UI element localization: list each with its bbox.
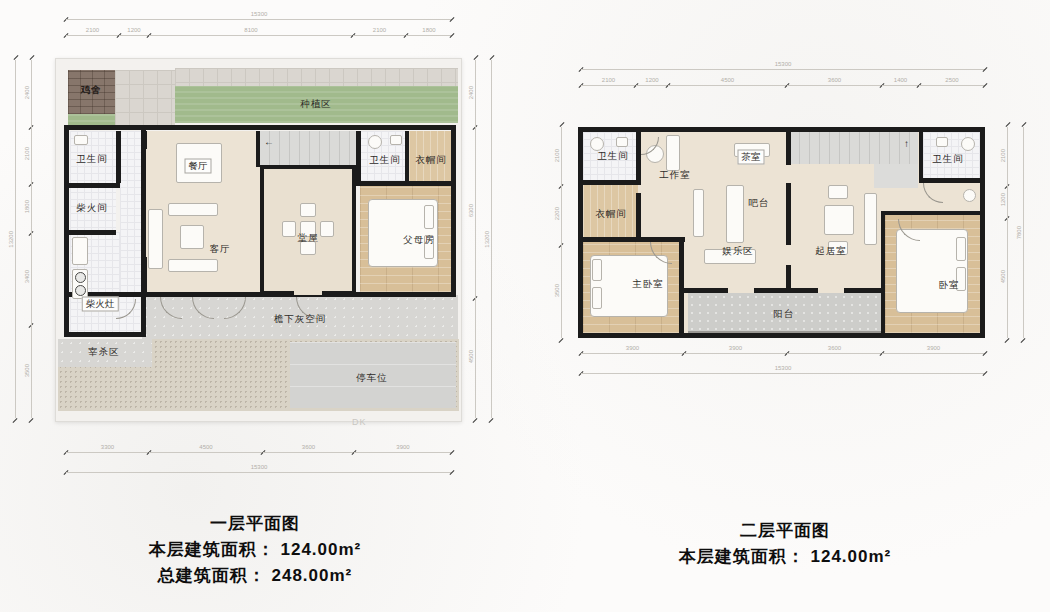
dim-value: 4500 xyxy=(721,77,734,83)
dim-value: 3600 xyxy=(828,345,841,351)
dim-value: 2100 xyxy=(1000,149,1006,162)
floor1-title: 一层平面图 xyxy=(95,511,415,537)
wall xyxy=(356,181,456,186)
wall xyxy=(786,127,791,165)
floor1-dim-top-segments: 2100 1200 8100 2100 1800 xyxy=(66,26,452,36)
floor1-site-sheet: ← 鸡舍 种植区 卫生间 餐厅 柴火间 客厅 堂屋 卫生间 衣帽间 父母房 柴火… xyxy=(55,58,462,422)
room-label-dining: 餐厅 xyxy=(185,159,212,174)
sofa-furniture xyxy=(148,209,163,269)
room-label-slaughter-area: 宰杀区 xyxy=(88,346,120,359)
burner-icon xyxy=(75,272,86,283)
wall xyxy=(636,193,641,237)
dim-value: 3900 xyxy=(729,345,742,351)
floor1-title-block: 一层平面图 本层建筑面积： 124.00m² 总建筑面积： 248.00m² xyxy=(95,511,415,589)
pillow-furniture xyxy=(424,205,434,229)
dim-value: 2100 xyxy=(602,77,615,83)
dim-value: 6300 xyxy=(468,204,474,217)
toilet-fixture xyxy=(616,137,628,147)
floor1-area-line1: 本层建筑面积： 124.00m² xyxy=(95,537,415,563)
dim-value: 4500 xyxy=(199,444,212,450)
pillow-furniture xyxy=(592,287,602,309)
balcony-railing xyxy=(688,331,881,333)
sofa-furniture xyxy=(168,259,218,272)
wall xyxy=(256,131,260,167)
toilet-fixture xyxy=(74,135,88,145)
floor1-dim-bottom-segments: 3300 4500 3600 3900 xyxy=(66,443,452,453)
dk-road-label: DK xyxy=(352,417,367,427)
room-label-chicken-coop: 鸡舍 xyxy=(81,84,102,97)
floor2-dim-right-total: 7800 xyxy=(1014,127,1024,338)
dim-value: 1200 xyxy=(645,77,658,83)
desk-furniture xyxy=(666,135,680,171)
chair-furniture xyxy=(828,185,848,199)
floor2-dim-bottom-segments: 3900 3900 3600 3900 xyxy=(581,344,985,354)
room-label-bathroom-1: 卫生间 xyxy=(76,153,108,166)
dim-value: 7800 xyxy=(1016,226,1022,239)
room-label-firewood-stove: 柴火灶 xyxy=(82,297,119,312)
floor2-dim-bottom-total: 15300 xyxy=(581,364,985,374)
room-label-firewood-room: 柴火间 xyxy=(76,202,108,215)
floor2-dim-top-total: 15300 xyxy=(581,60,985,70)
floor1-dim-left-segments: 2400 2100 1800 3400 3500 xyxy=(22,60,32,418)
dim-value: 1200 xyxy=(1000,193,1006,206)
floor2-title-block: 二层平面图 本层建筑面积： 124.00m² xyxy=(625,518,945,570)
dim-value: 3600 xyxy=(828,77,841,83)
kitchen-sink-fixture xyxy=(72,237,88,265)
room-label-parking-space: 停车位 xyxy=(356,372,388,385)
wall xyxy=(786,183,791,245)
sofa-furniture xyxy=(693,189,704,237)
hall-chair-furniture xyxy=(282,221,296,237)
room-label-tea-room: 茶室 xyxy=(738,150,765,165)
dim-value: 13200 xyxy=(484,231,490,248)
room-label-studio: 工作室 xyxy=(659,169,691,182)
dim-value: 4500 xyxy=(468,350,474,363)
wall xyxy=(142,131,147,149)
dim-value: 3500 xyxy=(24,364,30,377)
floor2-dim-left-segments: 2100 2200 3500 xyxy=(552,127,562,338)
dim-value: 3300 xyxy=(101,444,114,450)
room-label-eaves-gray-space: 檐下灰空间 xyxy=(274,313,327,326)
room-label-bathroom-ul: 卫生间 xyxy=(597,150,629,163)
dim-value: 1800 xyxy=(24,200,30,213)
table-furniture xyxy=(824,205,854,235)
room-label-bathroom-2: 卫生间 xyxy=(369,154,401,167)
dim-value: 1400 xyxy=(894,77,907,83)
dim-value: 15300 xyxy=(775,365,792,371)
floor1-area-line2: 总建筑面积： 248.00m² xyxy=(95,563,415,589)
room-label-bar: 吧台 xyxy=(749,197,770,210)
floor2-dim-top-segments: 2100 1200 4500 3600 1400 2500 xyxy=(581,76,985,86)
sofa-furniture xyxy=(168,203,218,216)
coffee-table-furniture xyxy=(180,225,204,249)
wall xyxy=(64,230,116,235)
room-label-entertainment: 娱乐区 xyxy=(722,245,754,258)
wall xyxy=(684,288,885,293)
balcony-door-opening xyxy=(728,288,754,293)
floor1-dim-top-total: 15300 xyxy=(66,10,452,20)
room-label-bathroom-ur: 卫生间 xyxy=(932,153,964,166)
dim-value: 3900 xyxy=(927,345,940,351)
dim-value: 15300 xyxy=(251,464,268,470)
room-label-sitting-room: 起居室 xyxy=(815,245,847,258)
floor2-area-line1: 本层建筑面积： 124.00m² xyxy=(625,544,945,570)
wall xyxy=(881,211,980,215)
room-label-parents-bedroom: 父母房 xyxy=(403,234,435,247)
wall xyxy=(583,180,641,185)
dim-value: 3500 xyxy=(554,284,560,297)
dim-value: 1200 xyxy=(127,27,140,33)
hall-chair-furniture xyxy=(300,203,316,217)
floorplan-canvas: 15300 2100 1200 8100 2100 1800 3300 4500… xyxy=(0,0,1050,612)
toilet-fixture xyxy=(936,137,948,147)
main-hall-door-opening xyxy=(294,287,322,295)
pillow-furniture xyxy=(592,259,602,281)
dim-value: 2400 xyxy=(468,86,474,99)
toilet-fixture xyxy=(390,135,402,145)
burner-icon xyxy=(75,285,86,296)
wall xyxy=(142,257,147,295)
wall xyxy=(116,131,121,183)
dim-value: 1800 xyxy=(422,27,435,33)
dim-value: 2100 xyxy=(554,149,560,162)
sink-fixture xyxy=(963,189,976,202)
bar-counter-furniture xyxy=(726,185,744,243)
dim-value: 2200 xyxy=(554,207,560,220)
room-label-main-hall: 堂屋 xyxy=(298,232,319,245)
stair-direction-arrow-icon: ← xyxy=(264,137,274,147)
dim-value: 2100 xyxy=(373,27,386,33)
dim-value: 2400 xyxy=(24,86,30,99)
dim-value: 3600 xyxy=(302,444,315,450)
room-label-balcony: 阳台 xyxy=(774,308,795,321)
floor1-dim-bottom-total: 15300 xyxy=(66,463,452,473)
wall xyxy=(64,183,120,188)
shower-fixture xyxy=(368,135,382,149)
floor2-title: 二层平面图 xyxy=(625,518,945,544)
floor2-house: ↑ 卫生间 工作室 茶室 卫生间 衣帽间 吧台 娱乐区 起居室 主卧室 阳台 卧… xyxy=(578,127,985,338)
room-label-planting-area: 种植区 xyxy=(300,98,332,111)
room-label-master-bedroom: 主卧室 xyxy=(632,278,664,291)
stair-direction-arrow-icon: ↑ xyxy=(904,139,909,149)
paving-area xyxy=(115,70,175,128)
pillow-furniture xyxy=(956,237,966,261)
dim-value: 2100 xyxy=(86,27,99,33)
floor1-dim-left-total: 13200 xyxy=(6,60,16,418)
floor1-dim-right-segments: 2400 6300 4500 xyxy=(466,60,476,418)
room-label-bedroom: 卧室 xyxy=(939,279,960,292)
wall xyxy=(405,131,409,183)
dim-value: 2100 xyxy=(24,147,30,160)
cabinet-furniture xyxy=(864,193,877,245)
wall xyxy=(881,211,885,333)
dim-value: 2500 xyxy=(945,77,958,83)
floor2-dim-right-segments: 2100 1200 4500 xyxy=(998,127,1008,338)
floor1-dim-right-total: 13200 xyxy=(482,60,492,418)
dim-value: 4500 xyxy=(1000,270,1006,283)
hall-chair-furniture xyxy=(320,221,334,237)
room-label-living: 客厅 xyxy=(210,243,231,256)
dim-value: 8100 xyxy=(244,27,257,33)
dim-value: 3400 xyxy=(24,270,30,283)
paving-strip xyxy=(175,68,458,86)
dim-value: 13200 xyxy=(8,231,14,248)
shower-fixture xyxy=(961,137,975,151)
dim-value: 3900 xyxy=(626,345,639,351)
wall xyxy=(356,131,361,186)
dim-value: 15300 xyxy=(251,11,268,17)
wall xyxy=(919,132,923,180)
dim-value: 3900 xyxy=(396,444,409,450)
room-label-cloakroom: 衣帽间 xyxy=(415,154,447,167)
room-label-cloakroom-2: 衣帽间 xyxy=(595,208,627,221)
dim-value: 15300 xyxy=(775,61,792,67)
balcony-door-opening xyxy=(818,288,844,293)
